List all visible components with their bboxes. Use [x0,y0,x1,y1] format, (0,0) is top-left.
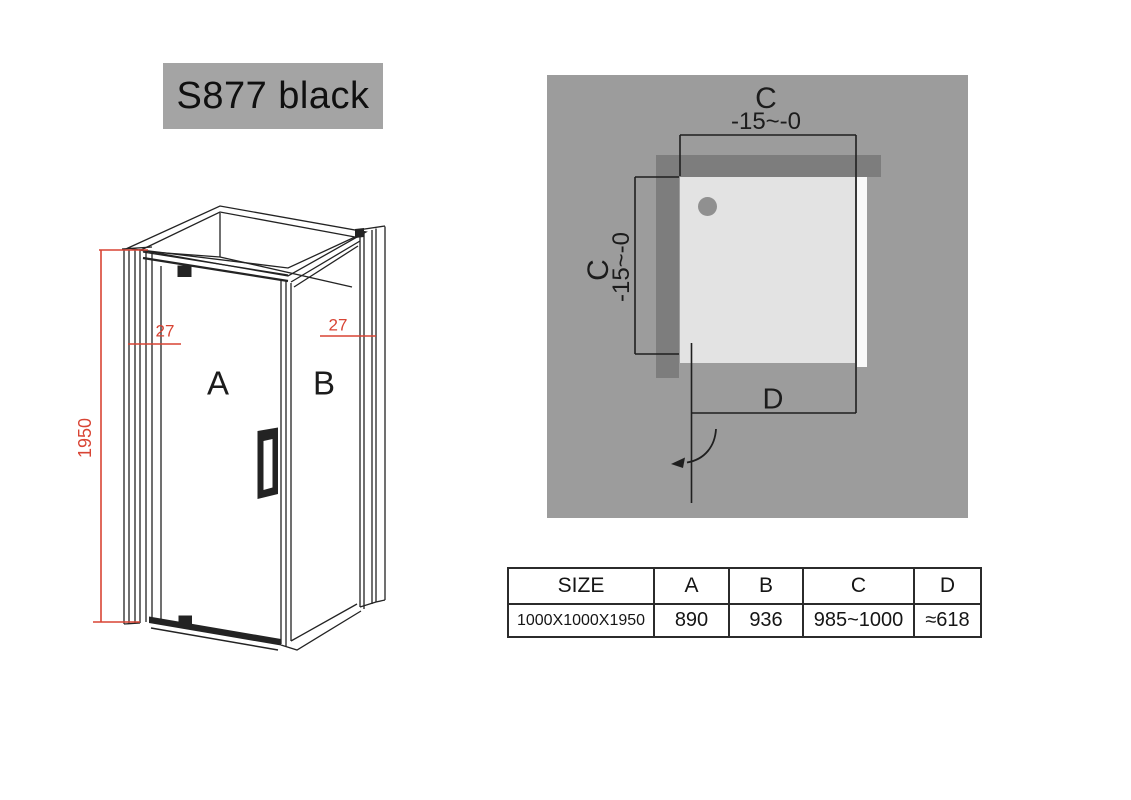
d-header-cell: D [914,568,981,604]
right-profile-dimension-label: 27 [329,317,348,334]
size-header-cell: SIZE [508,568,654,604]
wall-band-left [656,155,679,378]
height-dimension-label: 1950 [76,418,94,458]
diagram-page: S877 black [0,0,1131,800]
product-title: S877 black [176,75,369,118]
size-value-cell: 1000X1000X1950 [508,604,654,637]
size-table: SIZE A B C D 1000X1000X1950 890 936 985~… [507,567,982,638]
door-handle [258,428,279,500]
wall-band-top [656,155,881,177]
panel-a-label: A [207,367,229,400]
b-value-cell: 936 [729,604,803,637]
panel-b-label: B [313,367,335,400]
c-left-range-label: -15~-0 [610,232,634,302]
enclosure-3d-outline [122,206,385,650]
a-value-cell: 890 [654,604,729,637]
a-header-cell: A [654,568,729,604]
drain-circle [698,197,717,216]
top-pivot-hinge [178,266,192,278]
bottom-pivot-hinge [179,616,193,628]
size-table-header-row: SIZE A B C D [508,568,981,604]
side-glass-strip [857,177,867,367]
product-title-box: S877 black [163,63,383,129]
left-profile-dimension-label: 27 [156,323,175,340]
c-value-cell: 985~1000 [803,604,914,637]
size-table-value-row: 1000X1000X1950 890 936 985~1000 ≈618 [508,604,981,637]
d-dimension-label: D [763,386,784,415]
c-header-cell: C [803,568,914,604]
red-dimension-lines [93,250,376,622]
b-header-cell: B [729,568,803,604]
d-value-cell: ≈618 [914,604,981,637]
right-post-cap [355,228,364,238]
c-top-range-label: -15~-0 [731,110,801,134]
door-pivot-hinges [178,266,193,628]
